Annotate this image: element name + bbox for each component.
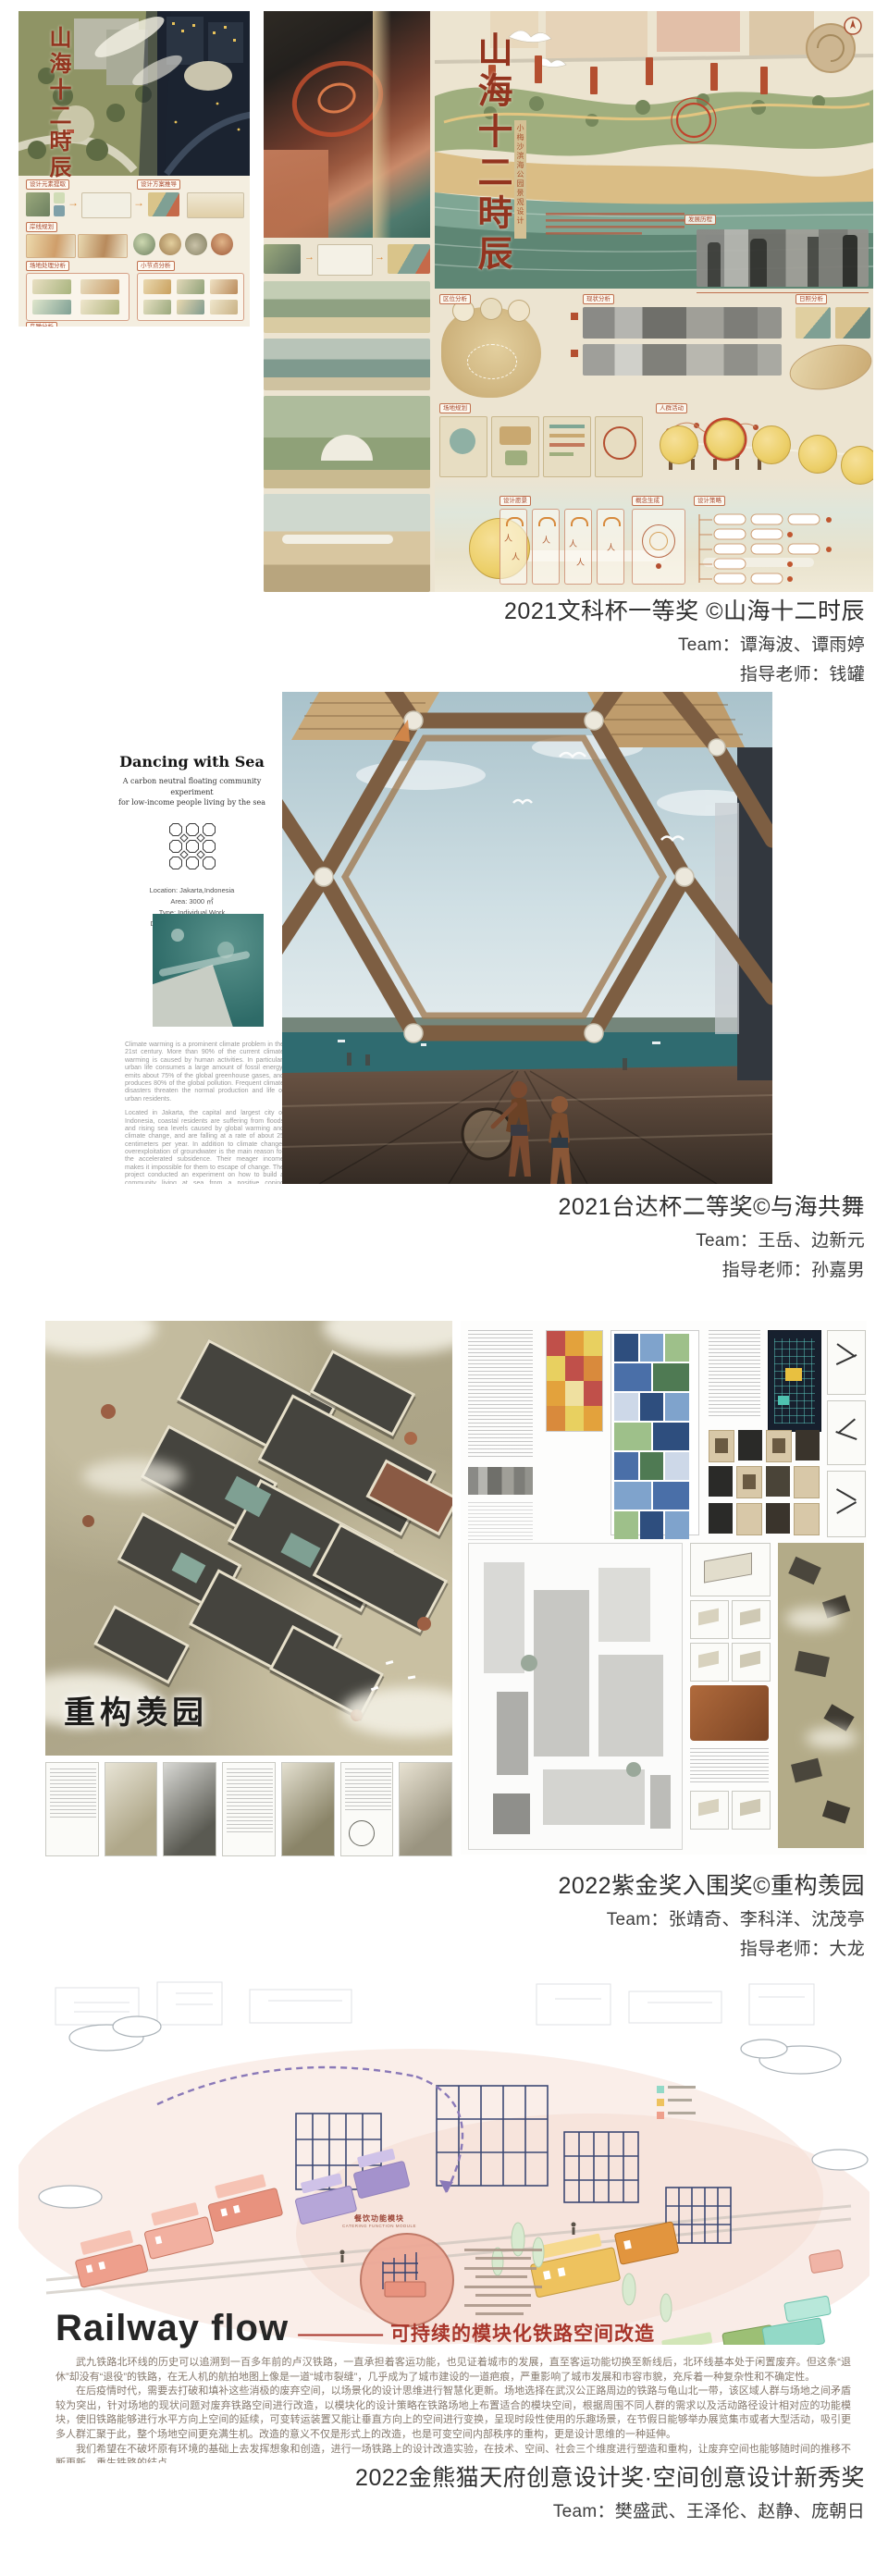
tan-axon-panel	[778, 1543, 864, 1848]
section-label: 区位分析	[439, 294, 471, 304]
railway-paragraph: 武九铁路北环线的历史可以追溯到一百多年前的卢汉铁路，一直承担着客运功能，也见证着…	[55, 2356, 851, 2385]
dancing-photo	[282, 692, 772, 1184]
octagon-pattern	[167, 821, 217, 871]
poster-image-railway: 餐饮功能模块 CATERING FUNCTION MODULE Railway …	[18, 1975, 869, 2463]
award-caption-4: 2022金熊猫天府创意设计奖·空间创意设计新秀奖 Team：樊盛武、王泽伦、赵静…	[355, 2466, 865, 2521]
mosaic-plan-cool	[610, 1330, 699, 1535]
section-label: 场地规划	[439, 403, 471, 413]
railway-axonometric	[18, 1975, 869, 2345]
aerial-teal-image	[153, 914, 264, 1027]
essay-paragraph: Located in Jakarta, the capital and larg…	[125, 1110, 284, 1184]
sketch-grid	[827, 1330, 864, 1535]
concept-diagram-box	[632, 509, 685, 585]
section-label: 场地处理分析	[26, 261, 69, 271]
grayscale-masterplan	[468, 1543, 683, 1850]
railway-paragraph: 我们希望在不破坏原有环境的基础上去发挥想象和创造，进行一场铁路上的设计改造实验，…	[55, 2443, 851, 2463]
section-label: 发展历程	[684, 215, 716, 225]
chonggou-brush-title: 重构羡园	[64, 1687, 208, 1732]
location-map	[441, 307, 541, 398]
project-subtitle: A carbon neutral floating community expe…	[102, 776, 282, 808]
section-label: 鸟瞰分析	[26, 322, 57, 327]
teacher-line: 指导老师：钱罐	[504, 666, 865, 685]
decor-node-box	[137, 273, 244, 321]
railway-title-row: Railway flow ————— 可持续的模块化铁路空间改造	[55, 2308, 655, 2349]
shanhai-right-calligraphy: 山海十二時辰	[467, 31, 518, 276]
teacher-line: 指导老师：孙嘉男	[558, 1262, 865, 1281]
subtitle-line2: for low-income people living by the sea	[118, 798, 265, 807]
shichen-circle	[841, 446, 873, 485]
award-title: 2021台达杯二等奖©与海共舞	[558, 1195, 865, 1221]
decor-analysis-box	[26, 273, 129, 321]
award-caption-2: 2021台达杯二等奖©与海共舞 Team：王岳、边新元 指导老师：孙嘉男	[558, 1195, 865, 1281]
shichen-circle	[752, 425, 791, 464]
section-label: 现状分析	[583, 294, 614, 304]
shanhai-right-dark-aerial	[264, 11, 430, 238]
shanhai-left-calligraphy: 山海十二時辰	[43, 26, 75, 181]
catering-module-label-cn: 餐饮功能模块	[324, 2213, 435, 2224]
award-title: 2021文科杯一等奖 ©山海十二时辰	[504, 599, 865, 625]
status-note	[571, 313, 578, 320]
board-dancing-with-sea: Dancing with Sea A carbon neutral floati…	[51, 692, 772, 1184]
meta-location: Location: Jakarta,Indonesia	[102, 885, 282, 896]
team-line: Team：谭海波、谭雨婷	[504, 636, 865, 656]
teacher-line: 指导老师：大龙	[558, 1941, 865, 1960]
section-label: 概念生成	[632, 496, 663, 506]
dancing-paragraphs: Climate warming is a prominent climate p…	[125, 1041, 284, 1184]
team-line: Team：王岳、边新元	[558, 1232, 865, 1251]
award-title: 2022金熊猫天府创意设计奖·空间创意设计新秀奖	[355, 2466, 865, 2492]
section-label: 设计策略	[694, 496, 725, 506]
poster-image-shanhai-left: 山海十二時辰 设计元素提取 设计方案推导 → → 岸线规划 场地处理分析 小节点…	[18, 11, 250, 327]
sun-study-map	[835, 307, 870, 339]
catering-module-label-en: CATERING FUNCTION MODULE	[324, 2224, 435, 2228]
chonggou-bottom-strip	[45, 1762, 452, 1855]
project-title: Dancing with Sea	[102, 753, 282, 770]
poster-image-shanhai-right: → →	[264, 11, 873, 592]
chonggou-sheets	[461, 1321, 867, 1855]
site-iso-ellipse	[785, 338, 873, 397]
status-note	[571, 350, 578, 357]
shichen-circle	[660, 425, 698, 464]
iso-diagram-column	[690, 1543, 769, 1848]
award-caption-3: 2022紫金奖入围奖©重构羡园 Team：张靖奇、李科洋、沈茂亭 指导老师：大龙	[558, 1874, 865, 1960]
strategy-flow-tree	[694, 509, 869, 588]
compass-icon	[845, 18, 861, 34]
section-label: 人群活动	[656, 403, 687, 413]
section-label: 日照分析	[795, 294, 827, 304]
section-label: 岸线规划	[26, 222, 57, 232]
dark-plan	[768, 1330, 821, 1432]
poster-image-chonggou: 重构羡园	[18, 1318, 869, 1860]
team-line: Team：张靖奇、李科洋、沈茂亭	[558, 1911, 865, 1930]
railway-title: Railway flow	[55, 2308, 289, 2349]
mosaic-plan-warm	[546, 1330, 603, 1432]
essay-paragraph: Climate warming is a prominent climate p…	[125, 1041, 284, 1103]
chonggou-painting: 重构羡园	[45, 1321, 452, 1756]
historic-photo-collage	[697, 229, 869, 287]
railway-subtitle: 可持续的模块化铁路空间改造	[390, 2319, 655, 2347]
railway-paragraph: 在后疫情时代，需要去打破和填补这些消极的废弃空间，以场景化的设计思维进行智慧化更…	[55, 2385, 851, 2442]
shanhai-subtitle-vertical: 小梅沙滨海公园景观设计	[515, 124, 525, 226]
status-photo-strip	[583, 344, 782, 376]
shichen-circle	[706, 420, 745, 459]
award-title: 2022紫金奖入围奖©重构羡园	[558, 1874, 865, 1900]
status-photo-strip	[583, 307, 782, 339]
section-label: 小节点分析	[137, 261, 175, 271]
portfolio-page: 山海十二時辰 设计元素提取 设计方案推导 → → 岸线规划 场地处理分析 小节点…	[0, 0, 888, 2576]
catering-module-label: 餐饮功能模块 CATERING FUNCTION MODULE	[324, 2213, 435, 2228]
shichen-circle	[798, 435, 837, 474]
team-line: Team：樊盛武、王泽伦、赵静、庞朝日	[355, 2503, 865, 2522]
section-label: 设计方案推导	[137, 179, 180, 190]
railway-title-dashes: —————	[298, 2324, 381, 2346]
section-label: 设计愿景	[499, 496, 531, 506]
timeline-line	[697, 292, 869, 293]
award-caption-1: 2021文科杯一等奖 ©山海十二时辰 Team：谭海波、谭雨婷 指导老师：钱罐	[504, 599, 865, 685]
railway-description: 武九铁路北环线的历史可以追溯到一百多年前的卢汉铁路，一直承担着客运功能，也见证着…	[55, 2356, 851, 2463]
subtitle-line1: A carbon neutral floating community expe…	[123, 777, 262, 796]
sun-study-map	[795, 307, 831, 339]
meta-area: Area: 3000 ㎡	[102, 896, 282, 907]
stamp-grid	[709, 1430, 820, 1535]
